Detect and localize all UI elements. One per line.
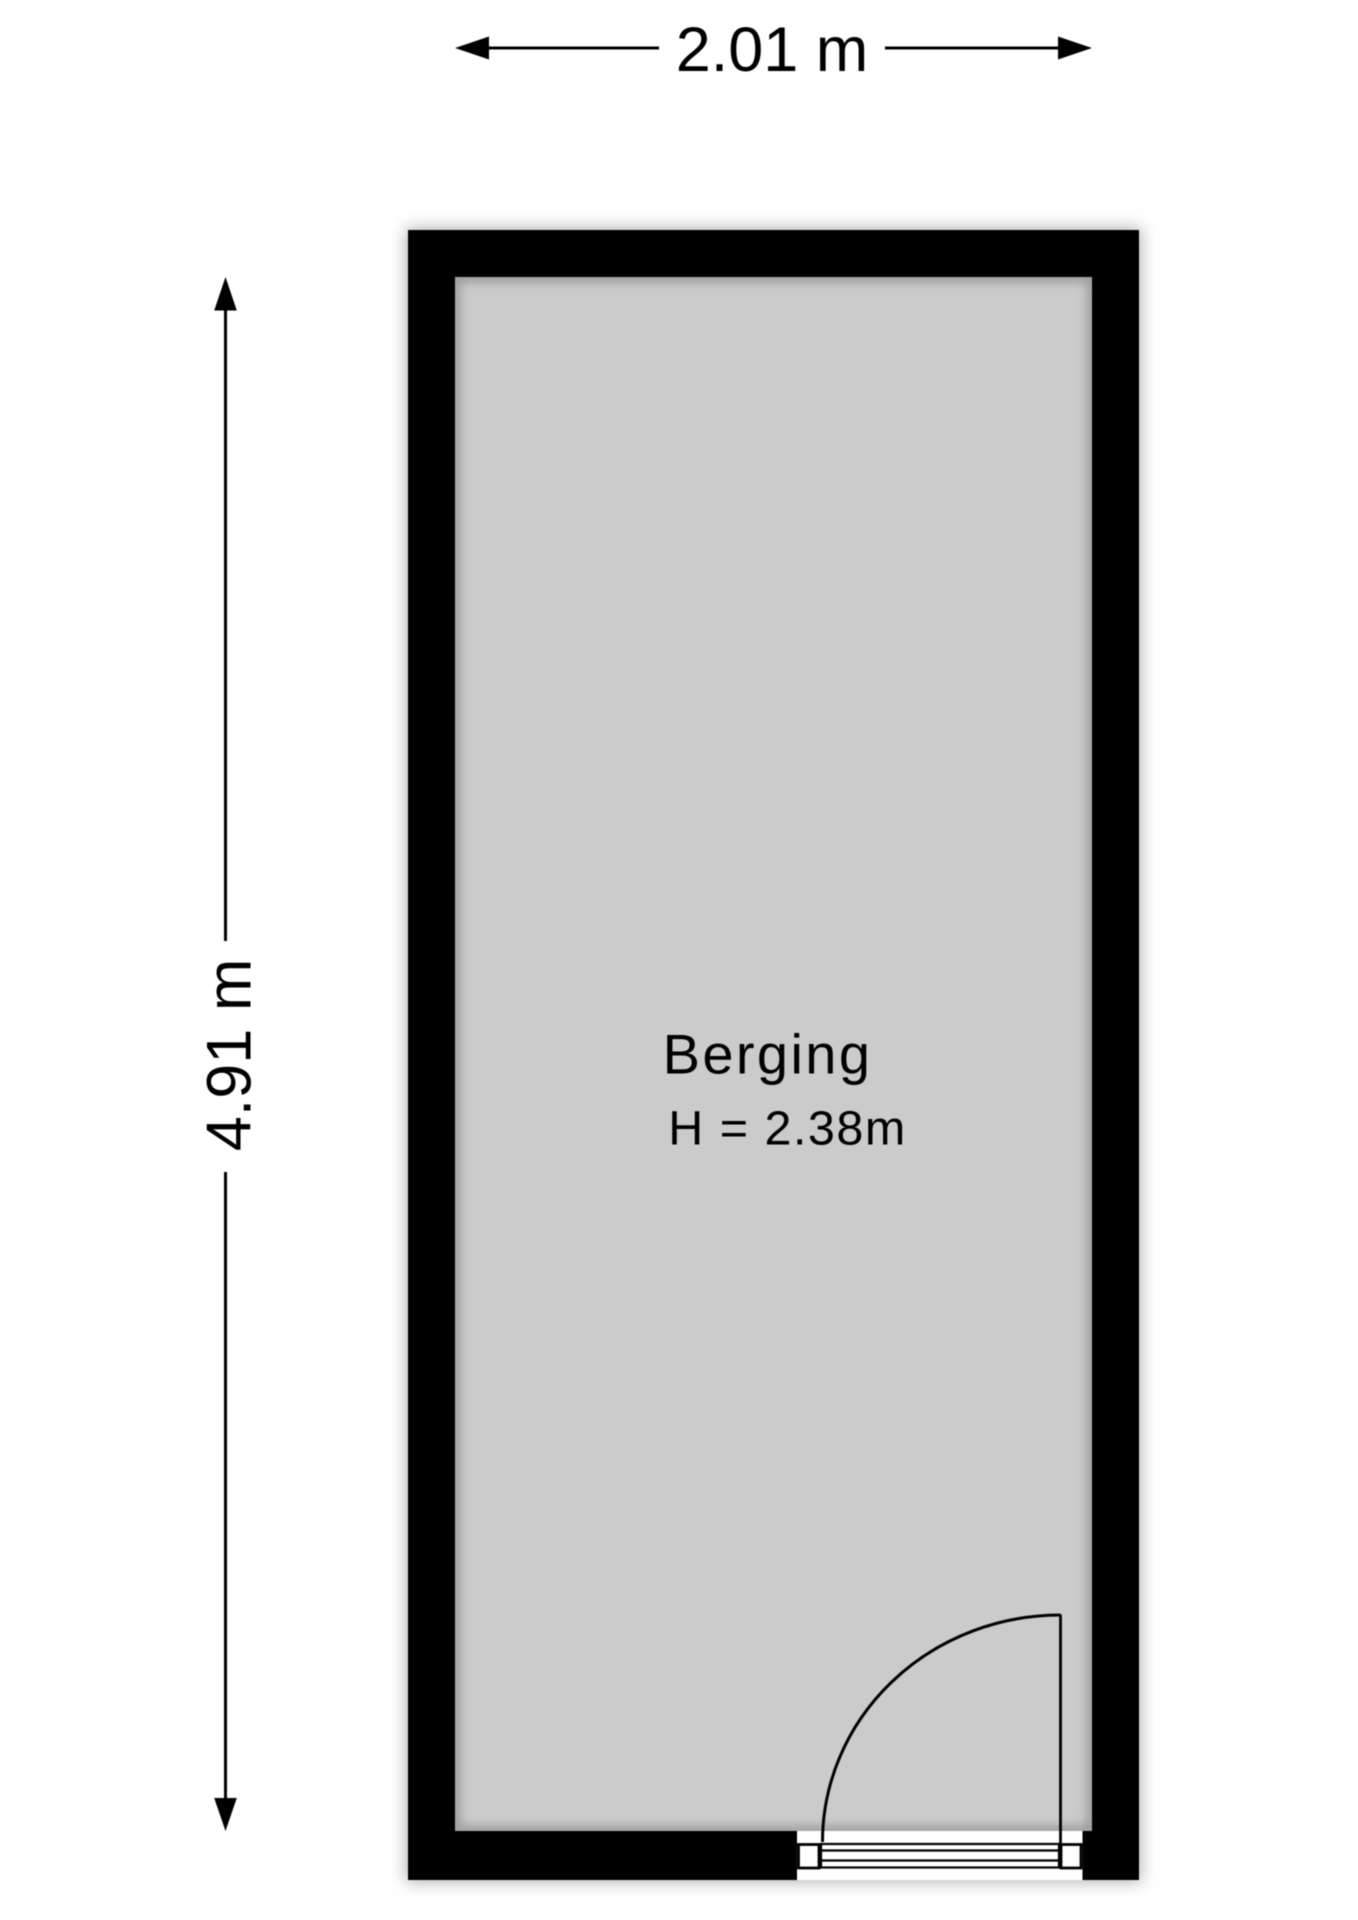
svg-text:4.91 m: 4.91 m <box>195 959 265 1152</box>
svg-text:2.01 m: 2.01 m <box>676 15 869 85</box>
svg-text:Berging: Berging <box>663 1023 873 1086</box>
svg-text:H = 2.38m: H = 2.38m <box>668 1102 907 1156</box>
